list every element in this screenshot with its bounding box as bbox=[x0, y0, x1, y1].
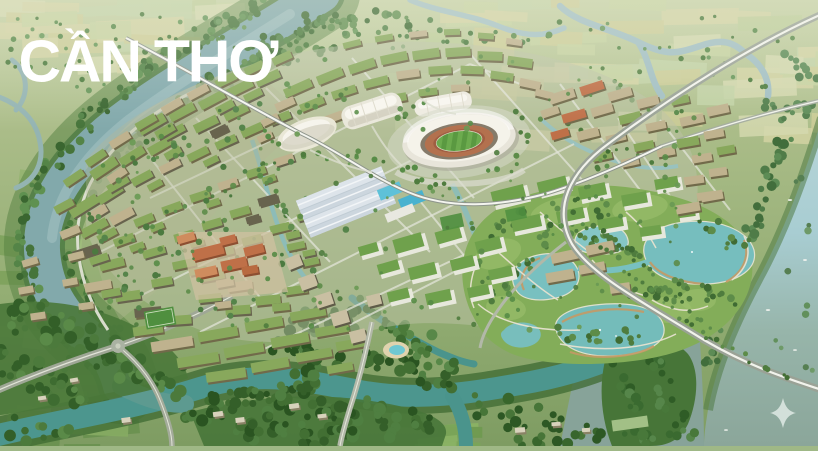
svg-text:CẦN THƠ: CẦN THƠ bbox=[19, 29, 280, 95]
